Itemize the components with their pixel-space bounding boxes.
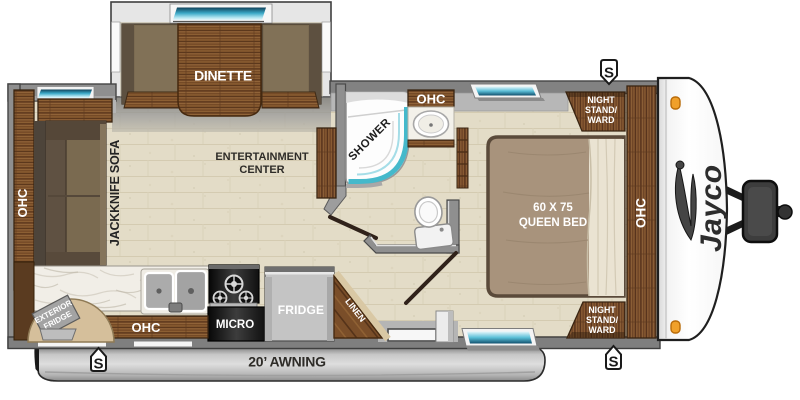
svg-text:OHC: OHC: [132, 320, 162, 335]
svg-text:S: S: [604, 65, 614, 82]
svg-text:JACKKNIFE SOFA: JACKKNIFE SOFA: [108, 140, 122, 246]
svg-text:WARD: WARD: [589, 325, 616, 335]
svg-text:OHC: OHC: [15, 188, 30, 218]
svg-text:NIGHT: NIGHT: [587, 95, 615, 105]
svg-text:DINETTE: DINETTE: [194, 68, 252, 84]
svg-text:QUEEN BED: QUEEN BED: [519, 217, 587, 229]
svg-text:S: S: [608, 354, 618, 371]
svg-text:WARD: WARD: [588, 115, 615, 125]
svg-text:Jayco: Jayco: [695, 164, 728, 252]
svg-text:ENTERTAINMENT: ENTERTAINMENT: [215, 151, 309, 163]
svg-text:STAND/: STAND/: [586, 315, 619, 325]
svg-text:MICRO: MICRO: [216, 319, 254, 331]
svg-text:OHC: OHC: [417, 92, 447, 107]
svg-text:CENTER: CENTER: [239, 164, 284, 176]
svg-text:OHC: OHC: [634, 198, 649, 228]
svg-text:20’ AWNING: 20’ AWNING: [248, 354, 326, 370]
svg-text:FRIDGE: FRIDGE: [278, 303, 325, 317]
svg-text:STAND/: STAND/: [585, 105, 618, 115]
svg-text:S: S: [93, 356, 103, 373]
svg-text:NIGHT: NIGHT: [588, 305, 616, 315]
svg-text:60 X 75: 60 X 75: [533, 202, 573, 214]
